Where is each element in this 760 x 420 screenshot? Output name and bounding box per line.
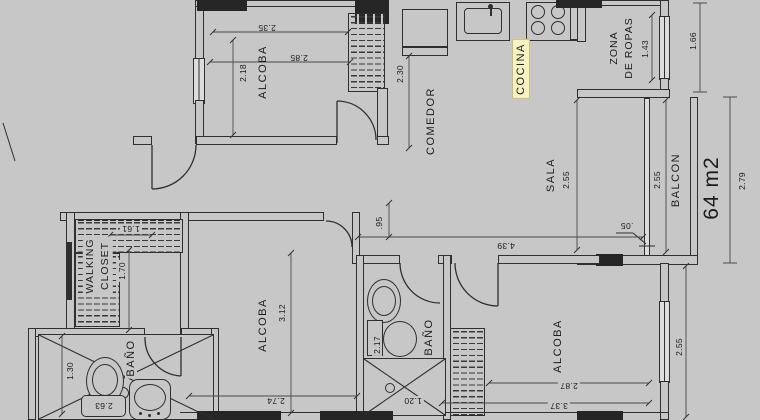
dim-3-12: 3.12 (277, 302, 287, 324)
dim-4-39: 4.39 (497, 241, 515, 251)
leader-lines (3, 123, 655, 246)
dim-2-87: 2.87 (558, 381, 580, 391)
dim-2-55-right: 2.55 (674, 336, 684, 358)
toilet-bowl-inner (92, 364, 118, 396)
washbasin-bowl (372, 286, 396, 316)
dim-2-79: 2.79 (737, 172, 747, 190)
room-label-alcoba-center: ALCOBA (257, 298, 269, 352)
dim-1-70: 1.70 (117, 260, 127, 282)
dim-1-66: 1.66 (688, 32, 698, 50)
shower-drain (385, 383, 395, 393)
dim-2-30: 2.30 (395, 65, 405, 83)
room-label-alcoba-top-left: ALCOBA (257, 45, 269, 99)
room-label-alcoba-bottom-right: ALCOBA (552, 319, 564, 373)
tap-dot (157, 412, 160, 415)
washbasin-bowl (134, 384, 166, 411)
door-arcs (145, 101, 498, 376)
dim-0-95: .95 (374, 217, 384, 230)
cocina-highlight[interactable]: COCINA (512, 39, 530, 99)
dim-1-30: 1.30 (65, 360, 75, 382)
dim-2-55-balcon: 2.55 (652, 171, 662, 189)
dim-3-37: 3.37 (548, 401, 570, 411)
dim-2-63-box: 2.63 (81, 395, 126, 417)
dim-2-35: 2.35 (258, 23, 276, 33)
dim-2-74: 2.74 (267, 396, 285, 406)
room-label-bano-bottom-left: BAÑO (125, 337, 137, 378)
room-label-zona-de-ropas: ZONA DE ROPAS (607, 17, 637, 78)
area-label-64-m2: 64 m2 (700, 156, 724, 219)
floor-plan: ALCOBA 2.35 2.85 2.18 COMEDOR 2.30 COCIN… (0, 0, 760, 420)
dim-1-43: 1.43 (640, 40, 650, 58)
dim-2-17: 2.17 (372, 334, 382, 356)
room-label-comedor: COMEDOR (425, 87, 437, 155)
tap-dot (139, 412, 142, 415)
room-label-walking-closet: WALKING CLOSET (83, 236, 113, 295)
dim-1-20: 1.20 (402, 396, 424, 406)
toilet-bowl (383, 321, 417, 357)
dim-2-63: 2.63 (95, 401, 113, 411)
room-label-bano-center: BAÑO (423, 316, 435, 357)
dim-1-61: 1.61 (120, 224, 142, 234)
dim-2-55-sala: 2.55 (561, 171, 571, 189)
dim-2-85: 2.85 (290, 53, 308, 63)
plan-linework (0, 0, 760, 420)
room-label-cocina-highlighted[interactable]: COCINA (515, 39, 527, 99)
tap-dot (148, 414, 151, 417)
room-label-balcon: BALCON (670, 153, 682, 207)
dim-2-18: 2.18 (238, 64, 248, 82)
room-label-sala: SALA (545, 158, 557, 192)
dim-0-05: .05 (619, 221, 636, 231)
